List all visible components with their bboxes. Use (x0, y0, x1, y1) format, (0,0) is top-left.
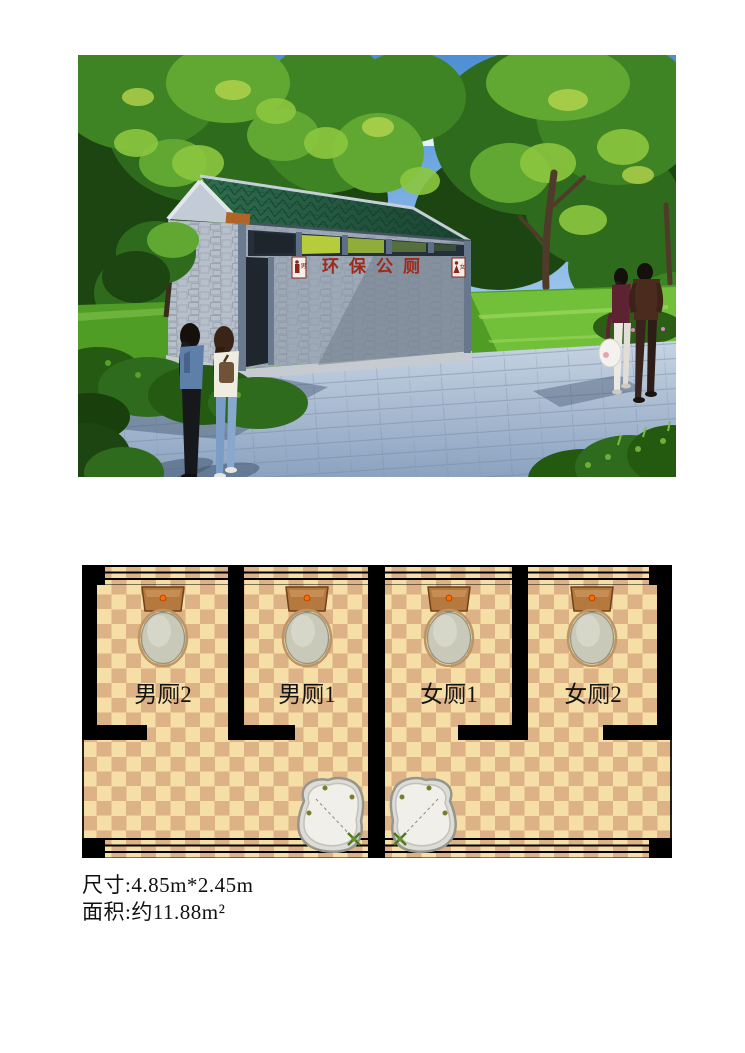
plan-left-wall-stub (82, 725, 147, 740)
plan-divider-men-stub (228, 725, 295, 740)
doorway (246, 257, 268, 367)
page: 环保公厕 男 女 (0, 0, 745, 1053)
female-sign-plaque: 女 (452, 258, 466, 277)
plan-divider-women-stub (458, 725, 528, 740)
exterior-rendering-photo: 环保公厕 男 女 (78, 55, 676, 477)
toilet-fixture (564, 583, 620, 667)
spec-size-line: 尺寸:4.85m*2.45m (82, 872, 254, 899)
toilet-fixture (421, 583, 477, 667)
floor-plan: 男厕2 男厕1 女厕1 女厕2 (82, 565, 672, 858)
plan-right-entrance-line (670, 740, 672, 838)
svg-text:女: 女 (459, 263, 465, 271)
plan-central-wall (368, 565, 385, 858)
plan-corner (649, 838, 672, 858)
spec-text-block: 尺寸:4.85m*2.45m 面积:约11.88m² (82, 872, 254, 926)
plan-right-wall (657, 565, 672, 740)
washbasin (292, 773, 368, 855)
rendering-scene: 环保公厕 男 女 (78, 55, 676, 477)
stall-label-men-2: 男厕2 (134, 675, 192, 709)
door-post (268, 257, 274, 365)
building-sign-text: 环保公厕 (322, 256, 430, 276)
spec-area-line: 面积:约11.88m² (82, 899, 254, 926)
male-sign-plaque: 男 (292, 257, 307, 278)
plan-left-wall (82, 565, 97, 740)
svg-text:男: 男 (300, 263, 306, 270)
stall-label-men-1: 男厕1 (278, 675, 336, 709)
eave-plaque (226, 212, 251, 225)
stall-label-women-2: 女厕2 (564, 675, 622, 709)
plan-divider-women (512, 565, 528, 740)
corner-post (238, 223, 246, 371)
plan-divider-men (228, 565, 244, 740)
plan-right-wall-stub (603, 725, 672, 740)
toilet-fixture (135, 583, 191, 667)
stall-label-women-1: 女厕1 (420, 675, 478, 709)
plan-corner (82, 838, 105, 858)
shopping-bag (599, 339, 621, 367)
plan-left-entrance-line (82, 740, 84, 838)
washbasin (386, 773, 462, 855)
toilet-fixture (279, 583, 335, 667)
